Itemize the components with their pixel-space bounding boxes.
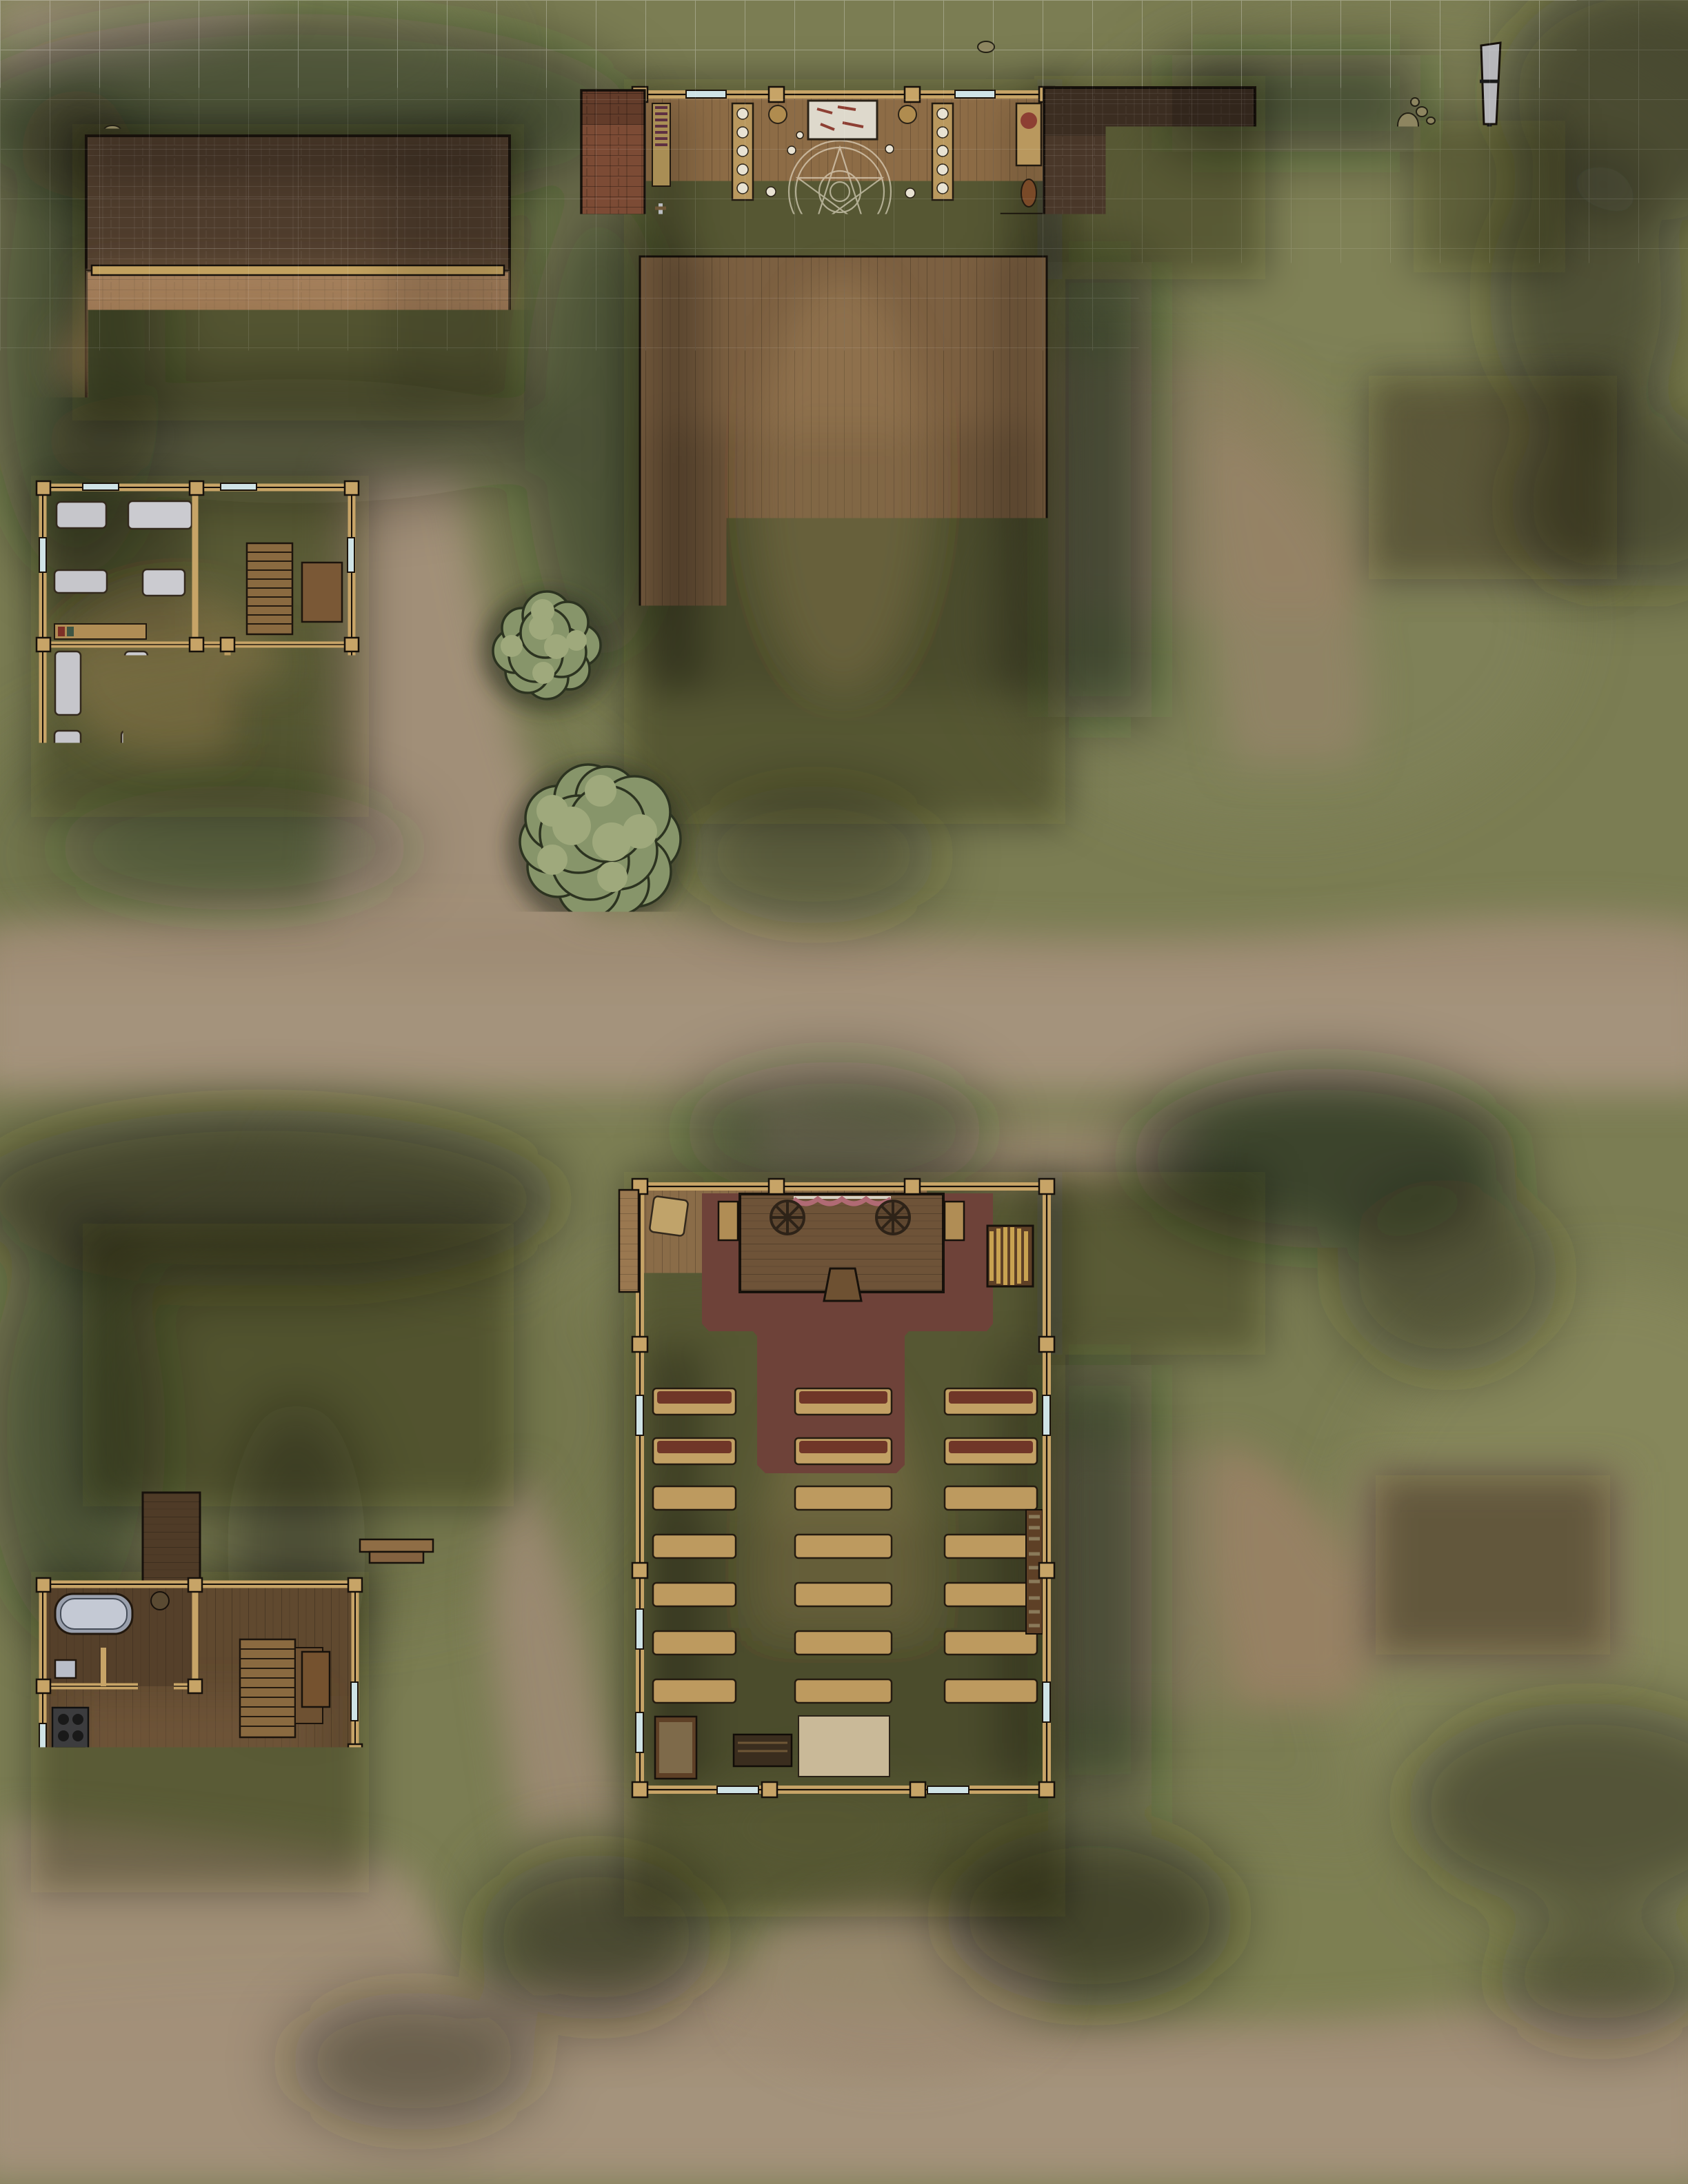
svg-text:PATREON | TOM CARTOS: PATREON | TOM CARTOS xyxy=(1354,1050,1628,1087)
svg-text:PATREON | TOM CARTOS: PATREON | TOM CARTOS xyxy=(1354,2129,1628,2166)
